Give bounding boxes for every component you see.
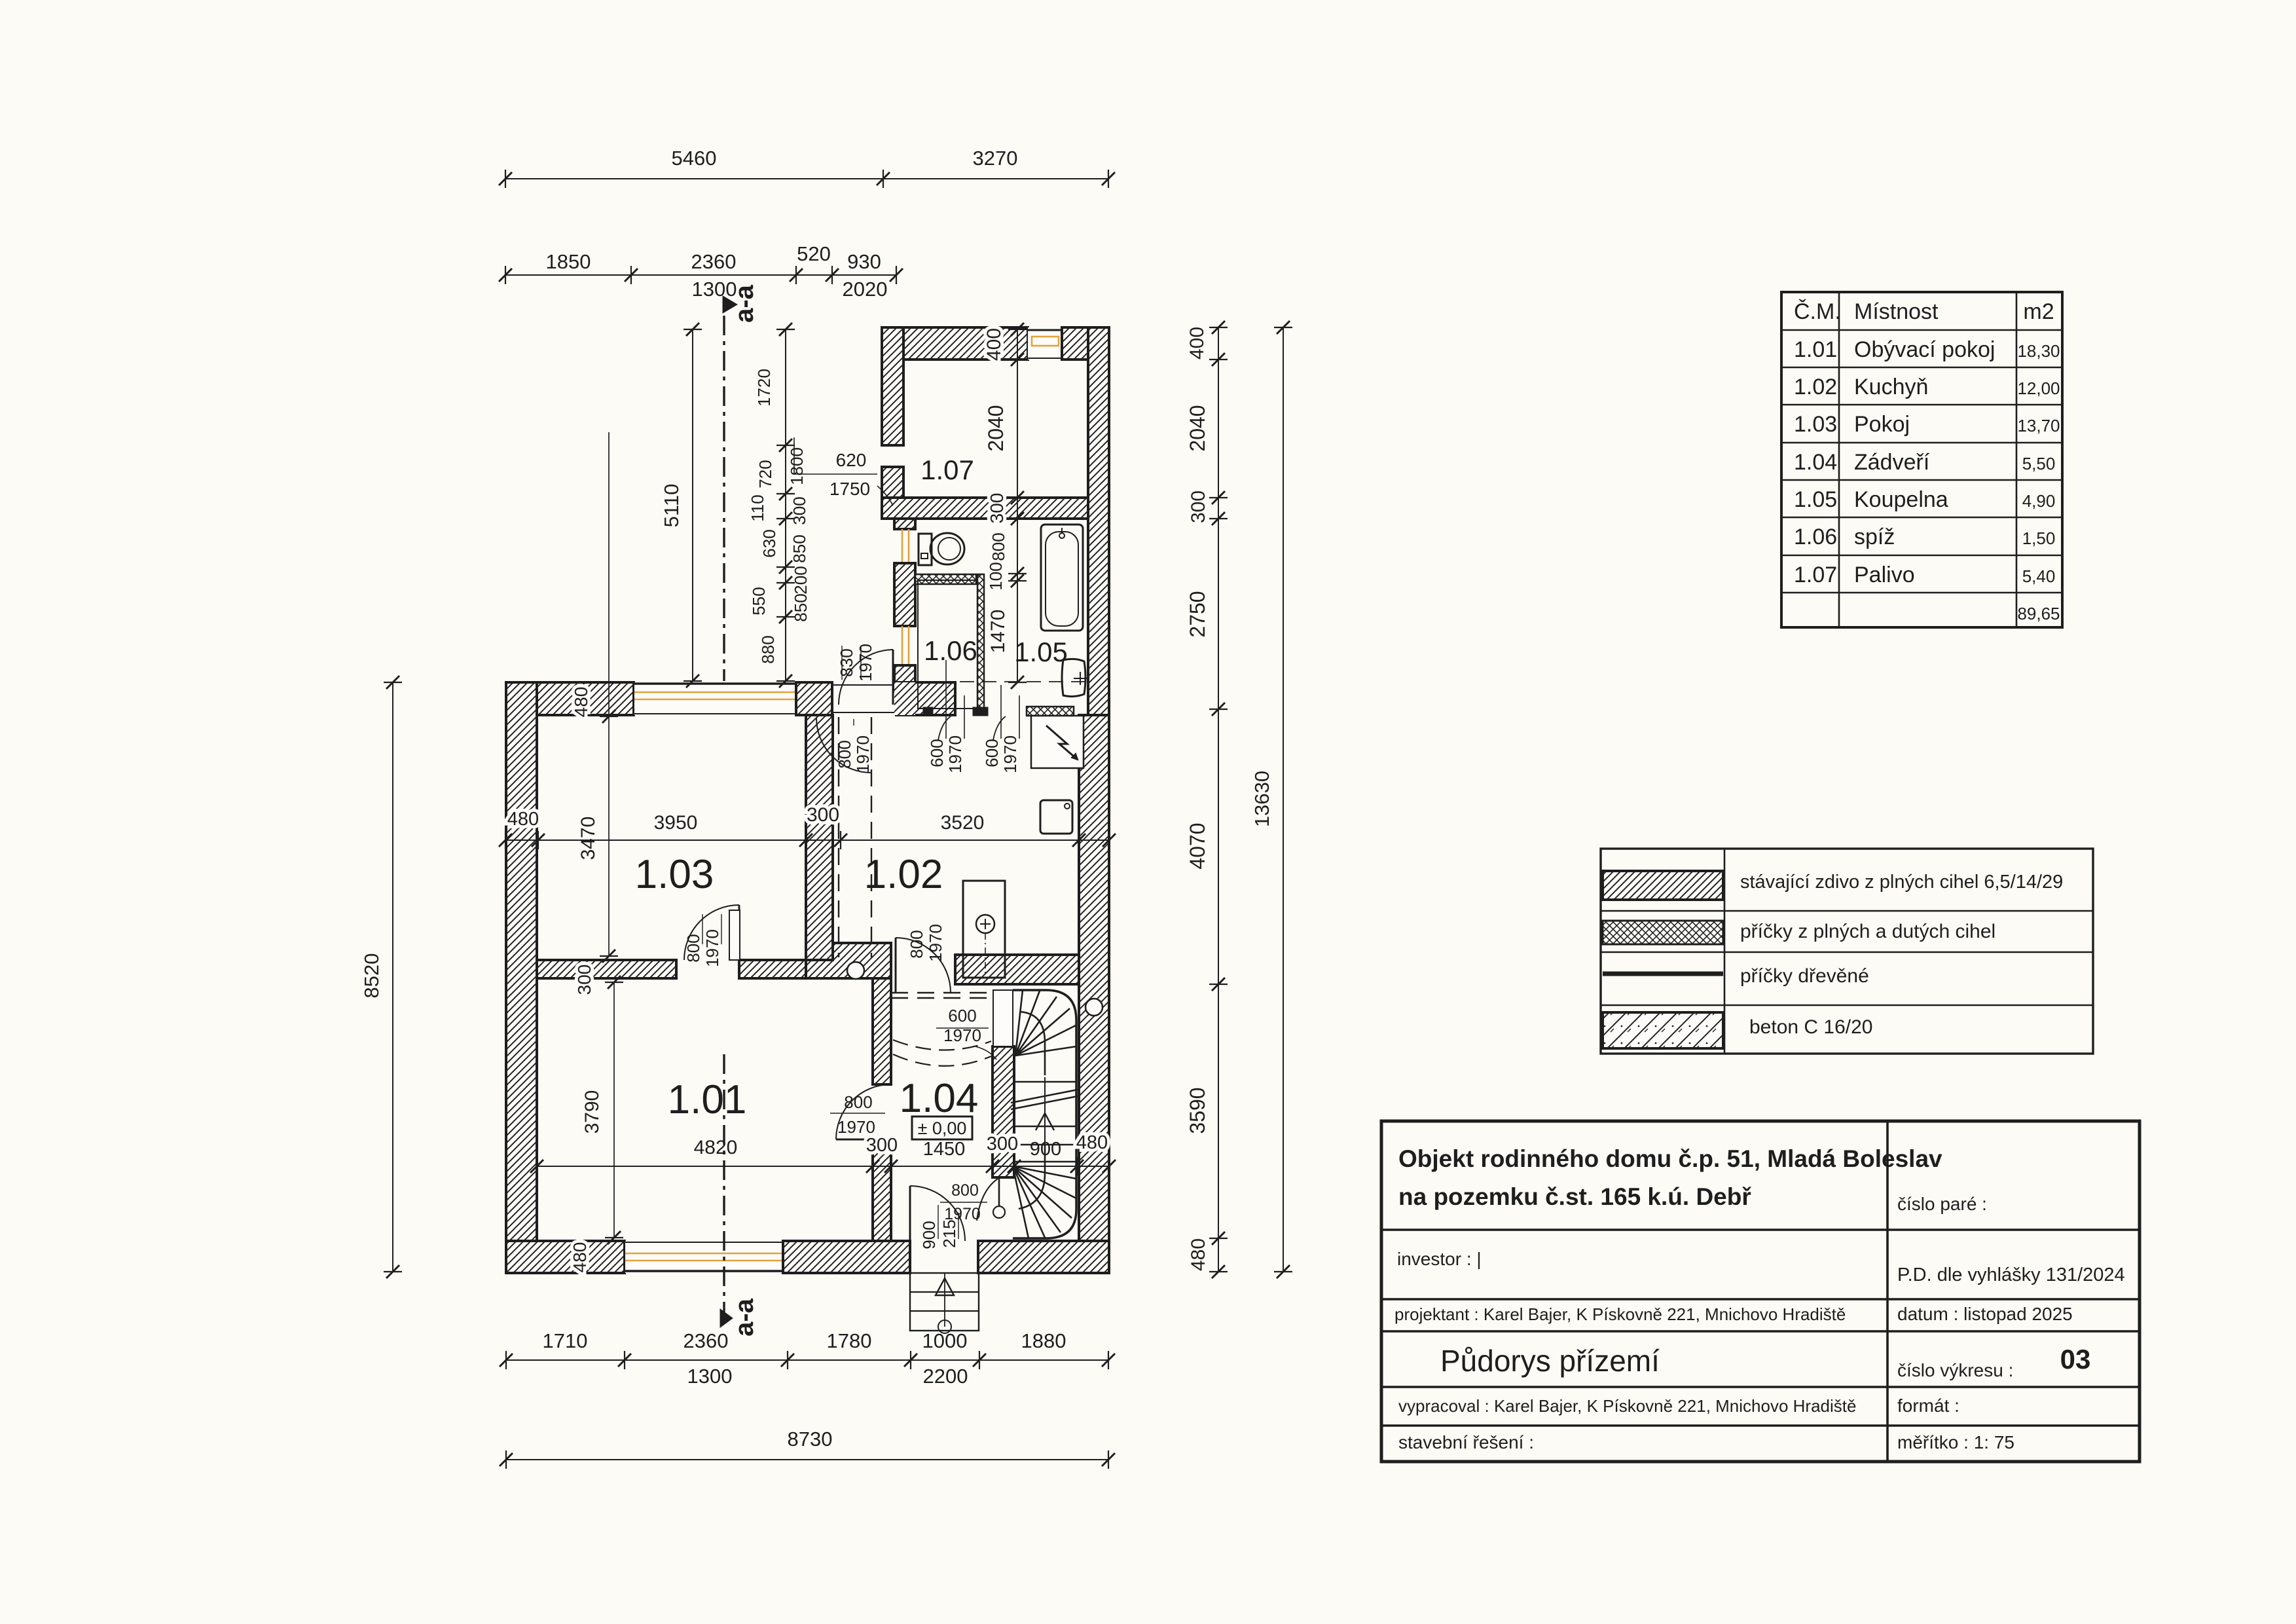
svg-text:520: 520: [797, 242, 831, 265]
svg-text:1710: 1710: [543, 1329, 588, 1352]
svg-text:Č.M.: Č.M.: [1794, 299, 1841, 324]
svg-text:datum : listopad 2025: datum : listopad 2025: [1897, 1304, 2073, 1324]
svg-text:8730: 8730: [788, 1428, 833, 1450]
svg-text:630: 630: [759, 529, 779, 557]
svg-text:1470: 1470: [987, 610, 1009, 654]
svg-text:1780: 1780: [827, 1329, 872, 1352]
svg-text:1.05: 1.05: [1794, 487, 1837, 512]
svg-text:5110: 5110: [660, 484, 683, 528]
svg-text:1.06: 1.06: [1794, 525, 1837, 549]
svg-text:800: 800: [844, 1092, 872, 1112]
svg-text:3790: 3790: [581, 1090, 603, 1134]
svg-text:Palivo: Palivo: [1854, 563, 1915, 587]
svg-text:480: 480: [507, 809, 539, 830]
svg-text:1300: 1300: [687, 1365, 733, 1388]
svg-text:Místnost: Místnost: [1854, 299, 1939, 324]
svg-text:930: 930: [847, 250, 881, 273]
svg-text:480: 480: [1076, 1132, 1108, 1153]
svg-text:620: 620: [836, 450, 867, 470]
svg-text:100: 100: [986, 562, 1006, 590]
svg-text:5460: 5460: [672, 147, 717, 170]
svg-text:3470: 3470: [577, 817, 599, 860]
svg-text:2020: 2020: [843, 278, 888, 301]
svg-text:800: 800: [683, 934, 703, 962]
svg-text:formát :: formát :: [1897, 1395, 1959, 1416]
svg-text:m2: m2: [2023, 299, 2054, 324]
svg-text:a-a: a-a: [730, 1298, 759, 1337]
svg-text:800: 800: [835, 740, 854, 768]
svg-text:8520: 8520: [360, 953, 383, 999]
svg-text:3590: 3590: [1186, 1087, 1209, 1134]
svg-text:Pokoj: Pokoj: [1854, 412, 1910, 437]
svg-text:5,40: 5,40: [2022, 566, 2056, 586]
svg-text:2040: 2040: [984, 405, 1008, 451]
svg-text:± 0,00: ± 0,00: [918, 1118, 967, 1138]
svg-text:850: 850: [791, 593, 811, 621]
svg-text:89,65: 89,65: [2017, 604, 2060, 623]
svg-text:720: 720: [756, 460, 775, 488]
svg-text:1800: 1800: [787, 447, 807, 485]
svg-text:110: 110: [748, 494, 767, 521]
svg-text:550: 550: [749, 587, 769, 615]
svg-text:3950: 3950: [654, 812, 698, 834]
svg-text:1970: 1970: [837, 1117, 875, 1137]
svg-text:1720: 1720: [754, 369, 774, 407]
svg-text:900: 900: [919, 1221, 939, 1249]
svg-text:480: 480: [570, 1242, 590, 1273]
svg-text:850: 850: [790, 534, 809, 563]
svg-text:1.04: 1.04: [1794, 450, 1837, 475]
svg-text:4,90: 4,90: [2022, 491, 2056, 511]
svg-text:1970: 1970: [702, 929, 722, 967]
svg-text:215: 215: [939, 1219, 959, 1247]
svg-text:měřítko : 1: 75: měřítko : 1: 75: [1897, 1432, 2014, 1452]
svg-text:2200: 2200: [923, 1365, 968, 1388]
svg-text:1970: 1970: [943, 1025, 981, 1045]
svg-text:03: 03: [2060, 1344, 2091, 1375]
svg-text:vypracoval : Karel Bajer, K Pí: vypracoval : Karel Bajer, K Pískovně 221…: [1398, 1396, 1856, 1416]
svg-text:Objekt rodinného domu č.p. 51,: Objekt rodinného domu č.p. 51, Mladá Bol…: [1398, 1145, 1942, 1172]
svg-text:1970: 1970: [853, 735, 873, 773]
svg-text:Kuchyň: Kuchyň: [1854, 375, 1928, 399]
svg-text:800: 800: [989, 532, 1008, 561]
svg-text:spíž: spíž: [1854, 525, 1895, 549]
svg-text:300: 300: [807, 804, 839, 826]
svg-text:300: 300: [790, 496, 809, 525]
svg-text:800: 800: [907, 930, 926, 958]
svg-text:300: 300: [866, 1135, 898, 1156]
svg-text:beton C 16/20: beton C 16/20: [1749, 1016, 1872, 1038]
svg-text:1750: 1750: [829, 479, 870, 499]
svg-text:stavební řešení :: stavební řešení :: [1398, 1432, 1534, 1452]
svg-text:Půdorys přízemí: Půdorys přízemí: [1440, 1344, 1660, 1378]
svg-text:600: 600: [927, 739, 947, 767]
svg-text:400: 400: [1186, 327, 1208, 360]
svg-text:830: 830: [837, 648, 856, 676]
svg-text:1.02: 1.02: [1794, 375, 1837, 399]
svg-text:3270: 3270: [973, 147, 1018, 170]
svg-text:1.01: 1.01: [668, 1077, 747, 1122]
svg-text:1.07: 1.07: [1794, 563, 1837, 587]
svg-text:300: 300: [987, 1134, 1018, 1154]
svg-text:1.07: 1.07: [920, 454, 974, 485]
svg-text:300: 300: [987, 493, 1007, 524]
svg-text:číslo výkresu :: číslo výkresu :: [1897, 1360, 2013, 1380]
svg-text:300: 300: [574, 965, 594, 995]
svg-text:Koupelna: Koupelna: [1854, 487, 1948, 512]
svg-text:600: 600: [948, 1006, 976, 1025]
svg-text:2360: 2360: [683, 1329, 729, 1352]
svg-text:1.06: 1.06: [924, 635, 977, 666]
svg-text:1970: 1970: [944, 1205, 981, 1223]
svg-text:1.03: 1.03: [635, 852, 714, 897]
svg-text:Zádveří: Zádveří: [1854, 450, 1930, 475]
svg-text:480: 480: [1188, 1238, 1209, 1271]
svg-text:příčky dřevěné: příčky dřevěné: [1740, 965, 1869, 987]
svg-text:investor : |: investor : |: [1397, 1249, 1482, 1269]
svg-text:4820: 4820: [694, 1137, 738, 1158]
svg-text:Obývací pokoj: Obývací pokoj: [1854, 337, 1995, 362]
svg-text:1970: 1970: [945, 735, 965, 773]
svg-text:stávající zdivo z plných cihel: stávající zdivo z plných cihel 6,5/14/29: [1740, 872, 2063, 893]
svg-text:a-a: a-a: [730, 284, 759, 323]
svg-text:1.04: 1.04: [900, 1076, 979, 1121]
svg-text:3520: 3520: [941, 812, 985, 834]
svg-text:900: 900: [1030, 1139, 1061, 1160]
svg-text:1450: 1450: [923, 1139, 966, 1160]
svg-text:12,00: 12,00: [2017, 378, 2060, 398]
svg-text:300: 300: [1188, 490, 1209, 523]
svg-text:2750: 2750: [1186, 591, 1209, 637]
svg-text:13,70: 13,70: [2017, 416, 2060, 435]
svg-text:1.02: 1.02: [864, 852, 943, 897]
svg-text:1970: 1970: [1000, 735, 1020, 773]
svg-text:400: 400: [983, 328, 1005, 361]
svg-text:200: 200: [791, 566, 811, 594]
svg-text:2360: 2360: [691, 250, 737, 273]
svg-text:1850: 1850: [546, 250, 591, 273]
svg-text:1880: 1880: [1021, 1329, 1066, 1352]
svg-text:příčky z plných a dutých cihel: příčky z plných a dutých cihel: [1740, 921, 1995, 942]
svg-text:1.05: 1.05: [1014, 637, 1068, 667]
svg-text:číslo paré :: číslo paré :: [1897, 1194, 1987, 1214]
svg-text:880: 880: [758, 635, 778, 663]
svg-text:1.03: 1.03: [1794, 412, 1837, 437]
svg-text:1000: 1000: [922, 1329, 968, 1352]
svg-text:4070: 4070: [1186, 822, 1209, 869]
svg-text:800: 800: [951, 1181, 979, 1200]
svg-text:na pozemku č.st. 165 k.ú. Debř: na pozemku č.st. 165 k.ú. Debř: [1398, 1183, 1751, 1210]
svg-text:P.D. dle vyhlášky 131/2024: P.D. dle vyhlášky 131/2024: [1897, 1264, 2125, 1285]
svg-text:18,30: 18,30: [2017, 341, 2060, 361]
svg-text:1.01: 1.01: [1794, 337, 1837, 362]
svg-text:13630: 13630: [1250, 771, 1273, 827]
svg-text:600: 600: [982, 739, 1002, 767]
svg-text:1970: 1970: [926, 924, 945, 962]
svg-text:5,50: 5,50: [2022, 454, 2056, 473]
svg-text:1970: 1970: [856, 644, 875, 682]
svg-text:2040: 2040: [1186, 405, 1209, 451]
svg-text:1,50: 1,50: [2022, 528, 2056, 548]
svg-text:480: 480: [571, 687, 591, 718]
svg-text:projektant : Karel Bajer, K P: projektant : Karel Bajer, K Pískovně 221…: [1394, 1304, 1846, 1324]
